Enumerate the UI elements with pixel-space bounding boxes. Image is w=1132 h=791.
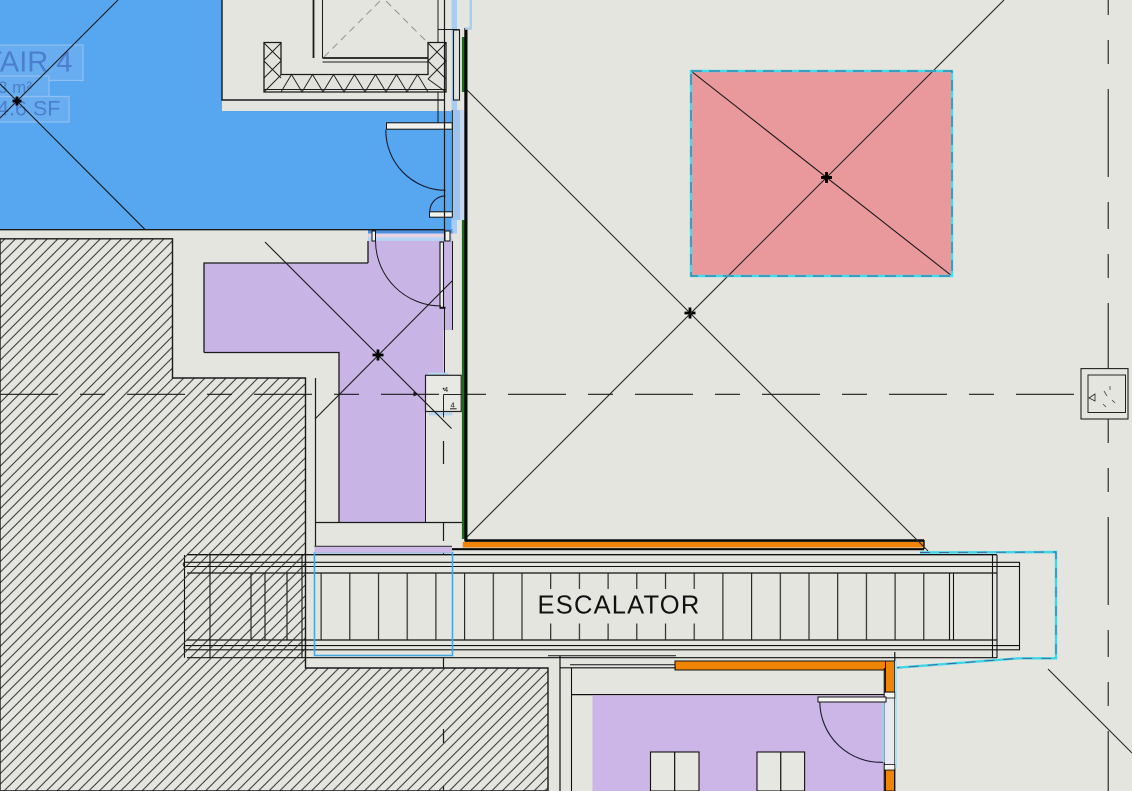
- svg-text:4: 4: [451, 401, 455, 410]
- svg-text:STAIR 4: STAIR 4: [0, 47, 72, 79]
- svg-text:ESCALATOR: ESCALATOR: [538, 592, 701, 620]
- svg-text:3 m²: 3 m²: [0, 78, 32, 97]
- svg-text:4: 4: [444, 385, 448, 394]
